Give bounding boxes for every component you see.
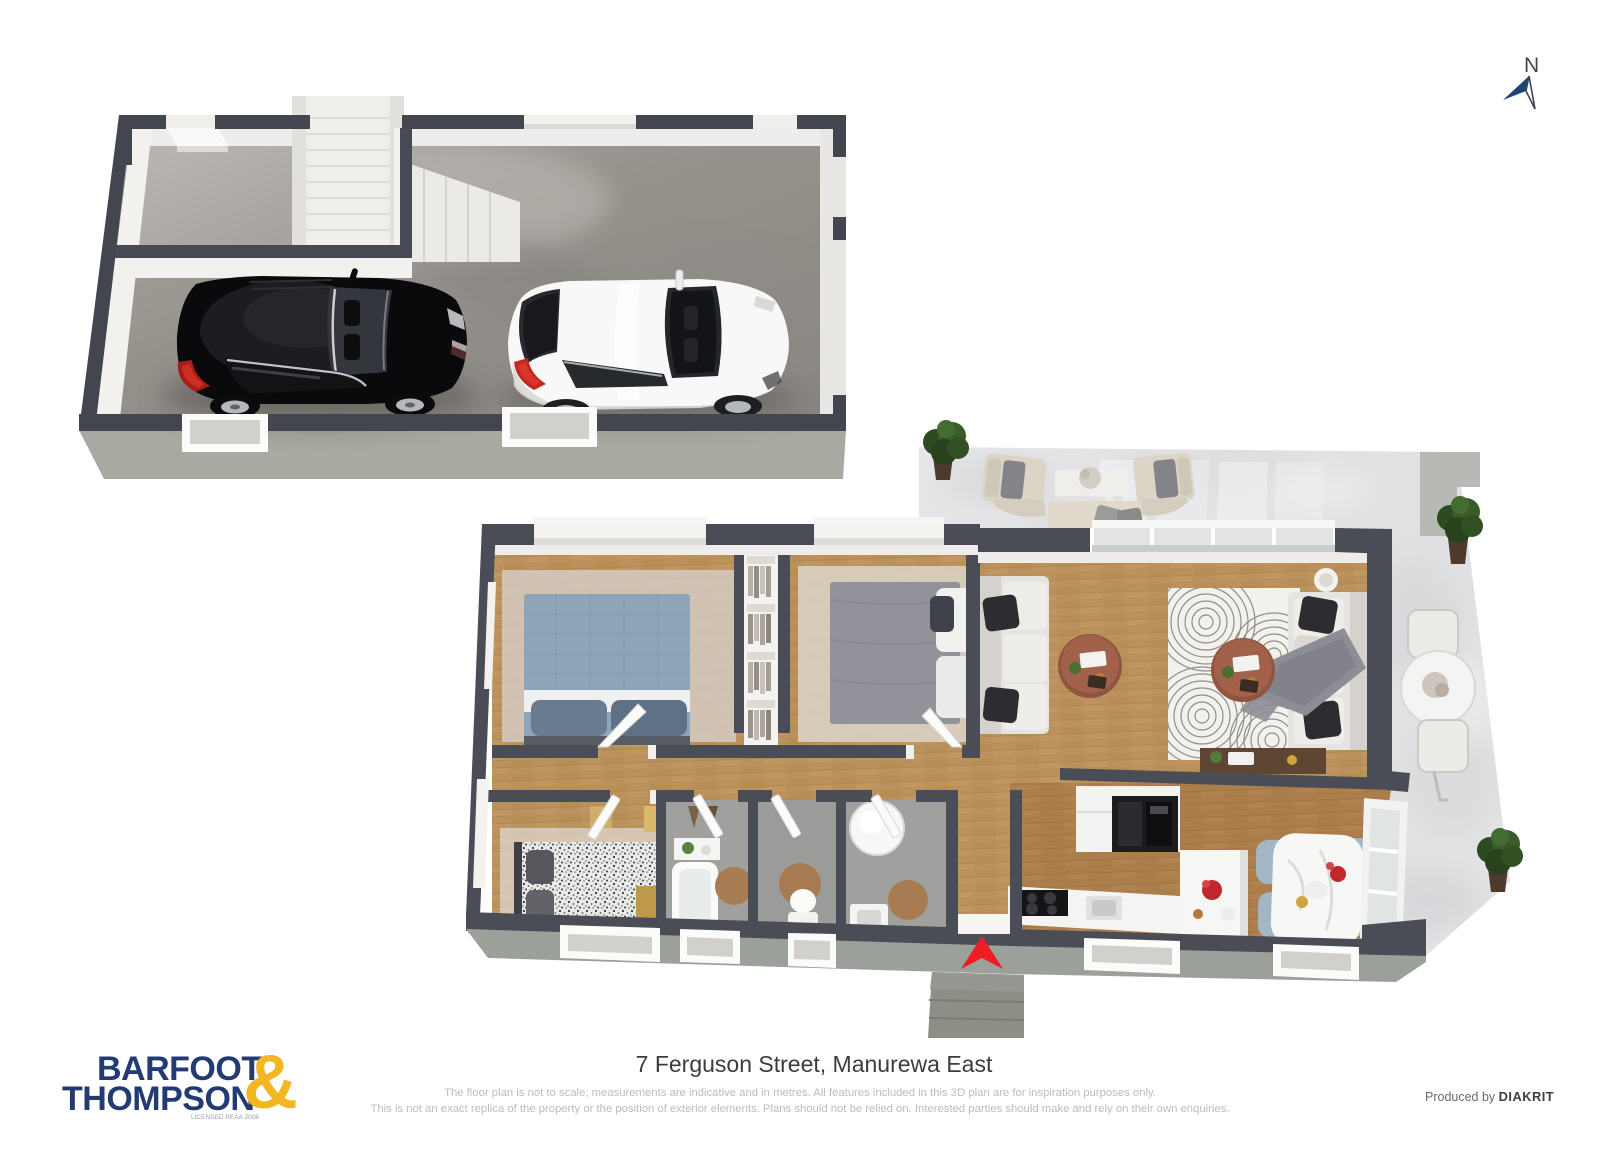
svg-text:This is not an exact replica o: This is not an exact replica of the prop…	[370, 1103, 1229, 1115]
svg-text:LICENSED REAA 2008: LICENSED REAA 2008	[191, 1114, 259, 1121]
svg-text:Produced by DIAKRIT: Produced by DIAKRIT	[1425, 1089, 1554, 1104]
svg-text:&: &	[243, 1040, 298, 1125]
svg-text:The floor plan is not to scale: The floor plan is not to scale; measurem…	[444, 1087, 1156, 1099]
svg-text:N: N	[1524, 54, 1539, 77]
svg-text:7 Ferguson Street, Manurewa Ea: 7 Ferguson Street, Manurewa East	[636, 1051, 993, 1077]
svg-text:THOMPSON: THOMPSON	[62, 1080, 254, 1118]
